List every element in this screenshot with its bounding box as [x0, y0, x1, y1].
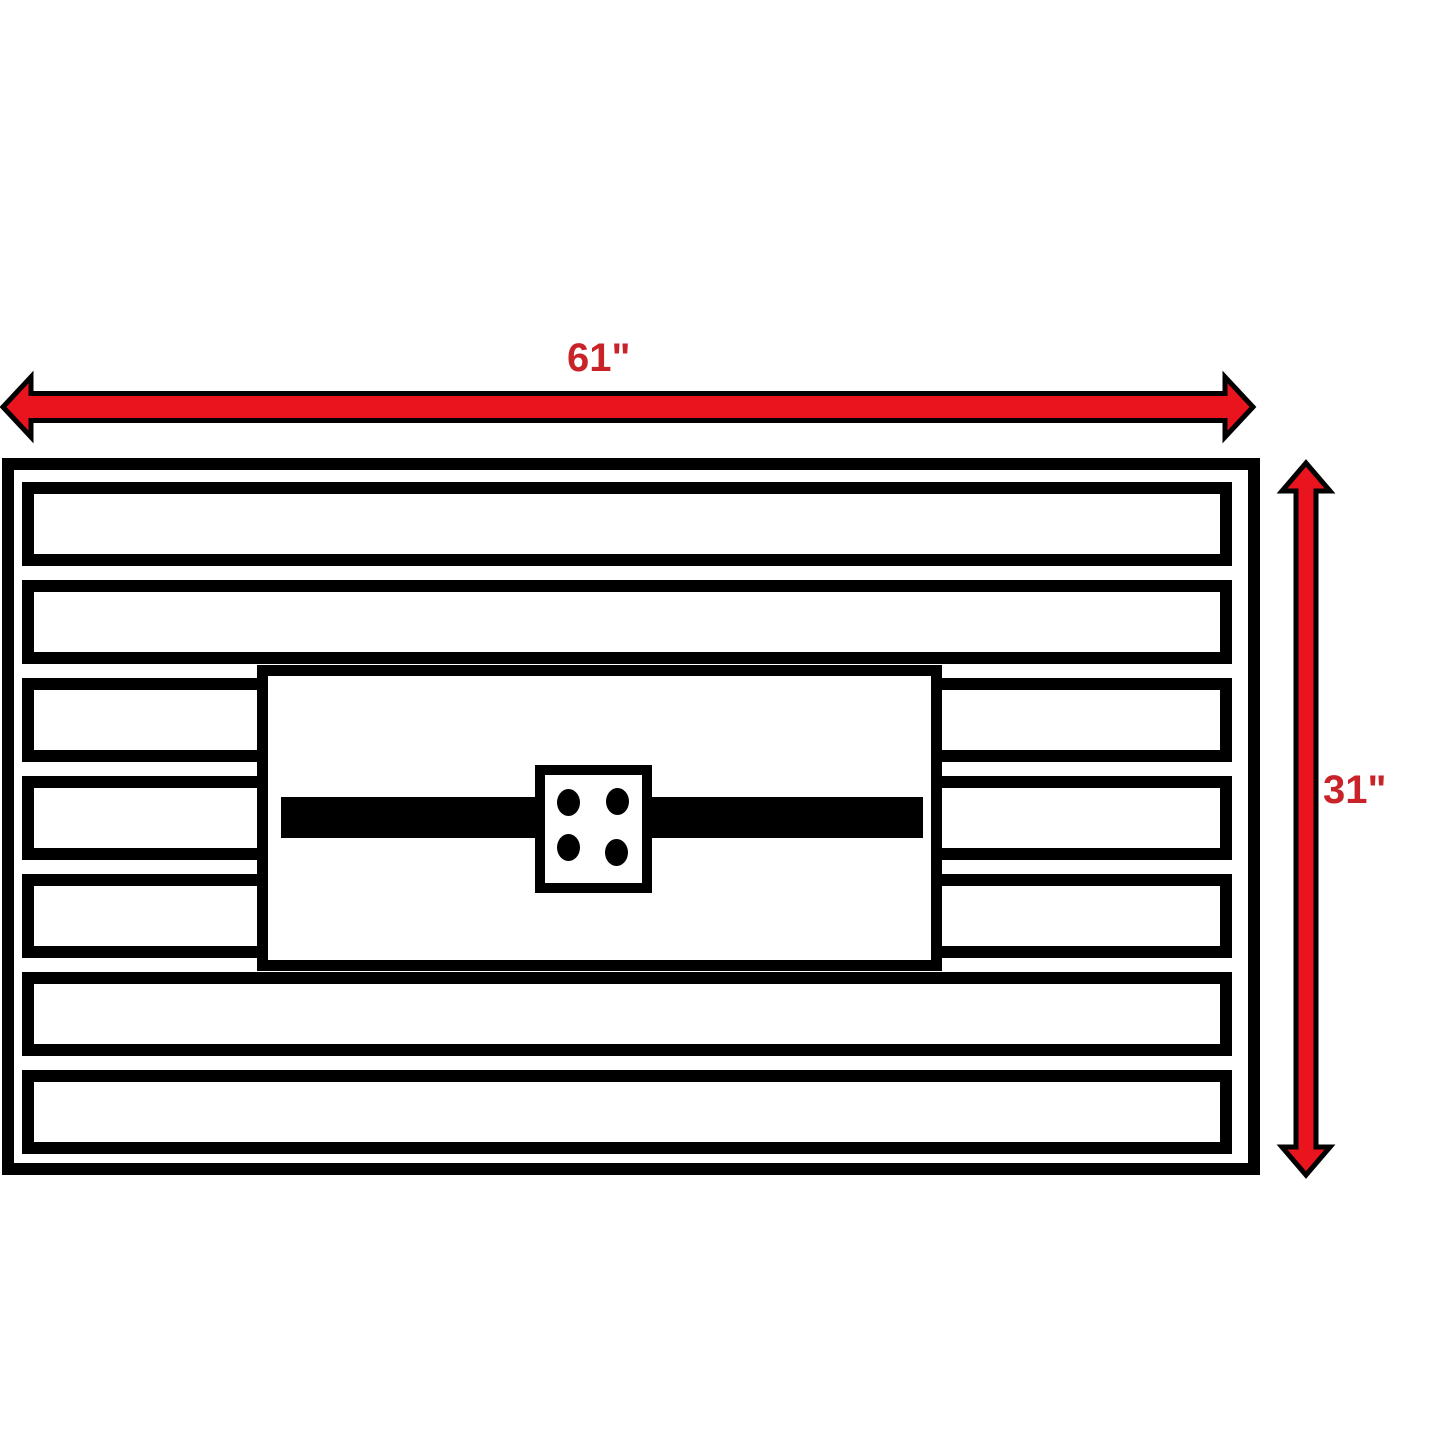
bolt-hole-icon: [557, 789, 580, 816]
slat: [22, 580, 1232, 664]
slat: [22, 482, 1232, 566]
width-dimension-arrow-icon: [3, 377, 1253, 437]
slat: [22, 1070, 1232, 1154]
height-dimension-label: 31": [1323, 770, 1386, 810]
mounting-plate: [535, 765, 652, 893]
width-dimension-label: 61": [567, 338, 630, 378]
bolt-hole-icon: [557, 834, 580, 861]
slat: [22, 972, 1232, 1056]
bolt-hole-icon: [606, 788, 629, 815]
bolt-hole-icon: [605, 839, 628, 866]
height-dimension-arrow-icon: [1282, 463, 1330, 1175]
diagram-canvas: 61" 31": [0, 0, 1445, 1445]
